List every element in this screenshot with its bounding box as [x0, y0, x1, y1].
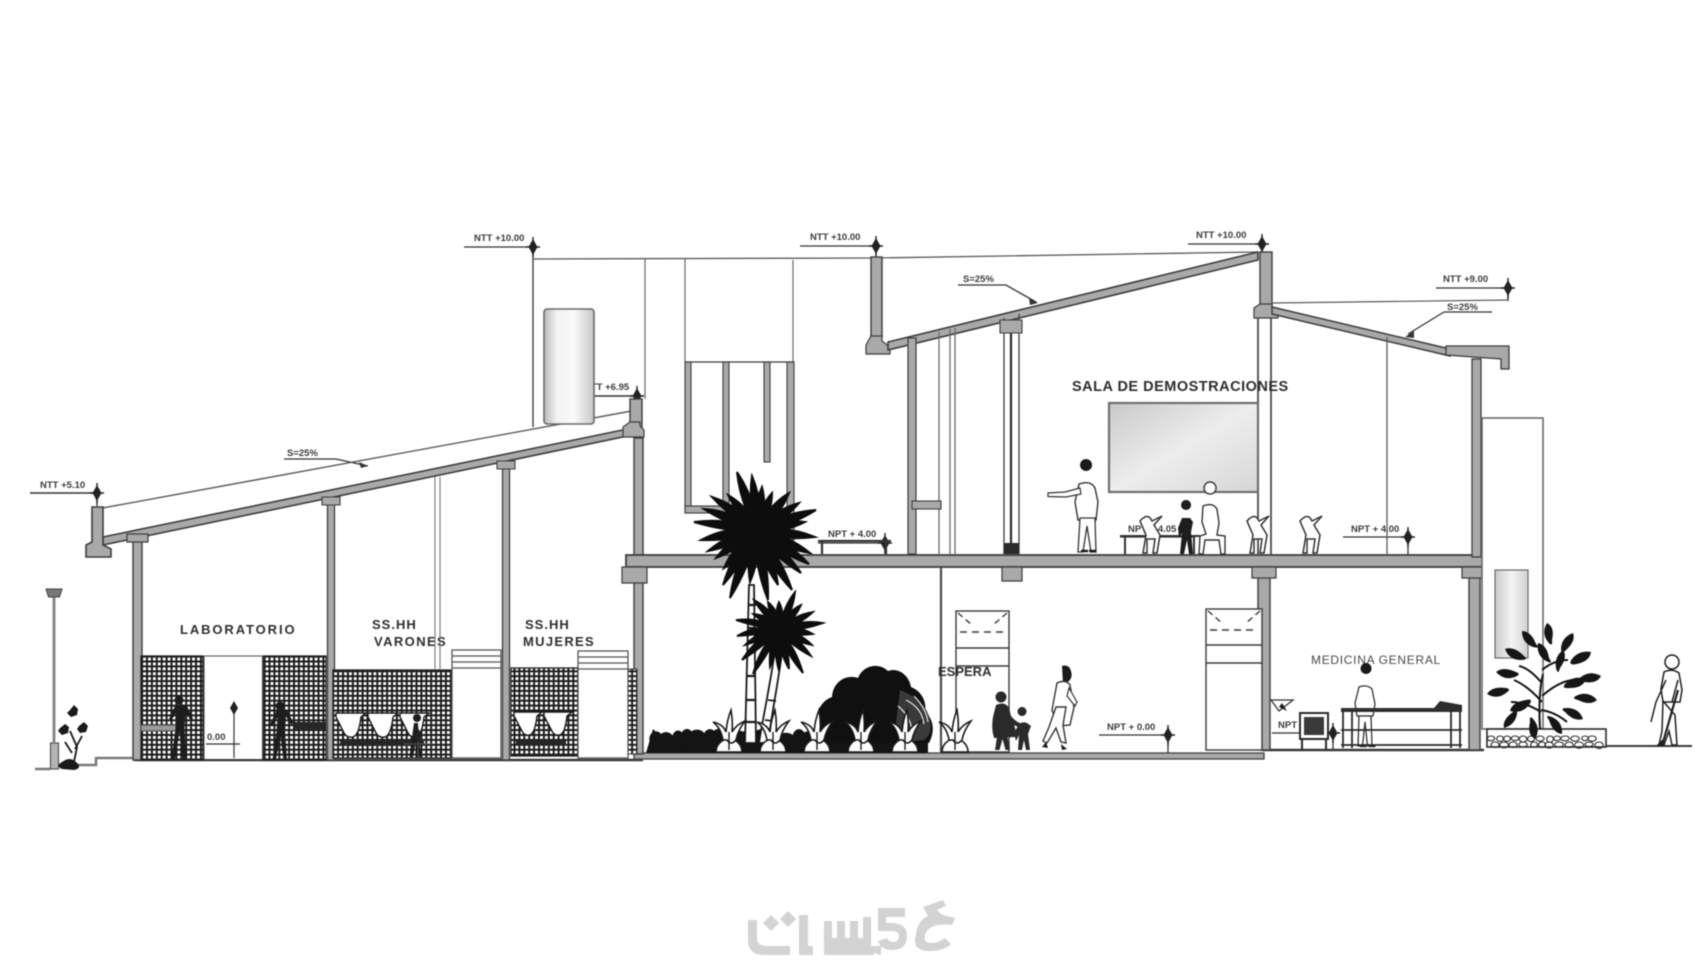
svg-text:MUJERES: MUJERES: [523, 634, 595, 649]
svg-text:MEDICINA GENERAL: MEDICINA GENERAL: [1311, 653, 1441, 667]
svg-text:SALA DE DEMOSTRACIONES: SALA DE DEMOSTRACIONES: [1072, 379, 1289, 395]
svg-text:NPT + 4.00: NPT + 4.00: [1351, 524, 1399, 535]
svg-text:NTT +10.00: NTT +10.00: [474, 233, 524, 244]
svg-text:SS.HH: SS.HH: [372, 617, 417, 632]
svg-text:NTT +9.00: NTT +9.00: [1443, 274, 1488, 285]
svg-text:SS.HH: SS.HH: [525, 617, 570, 632]
svg-text:NPT + 0.00: NPT + 0.00: [1107, 722, 1155, 733]
svg-text:ESPERA: ESPERA: [938, 664, 992, 679]
svg-text:LABORATORIO: LABORATORIO: [180, 622, 296, 637]
svg-text:NTT +5.10: NTT +5.10: [40, 480, 85, 491]
svg-text:VARONES: VARONES: [374, 634, 447, 649]
svg-text:NPT + 4.00: NPT + 4.00: [828, 529, 876, 540]
svg-text:NTT +10.00: NTT +10.00: [810, 232, 860, 243]
svg-text:0.00: 0.00: [207, 732, 226, 743]
svg-text:NTT +10.00: NTT +10.00: [1196, 230, 1246, 241]
svg-text:S=25%: S=25%: [287, 448, 318, 459]
svg-text:S=25%: S=25%: [963, 274, 994, 285]
